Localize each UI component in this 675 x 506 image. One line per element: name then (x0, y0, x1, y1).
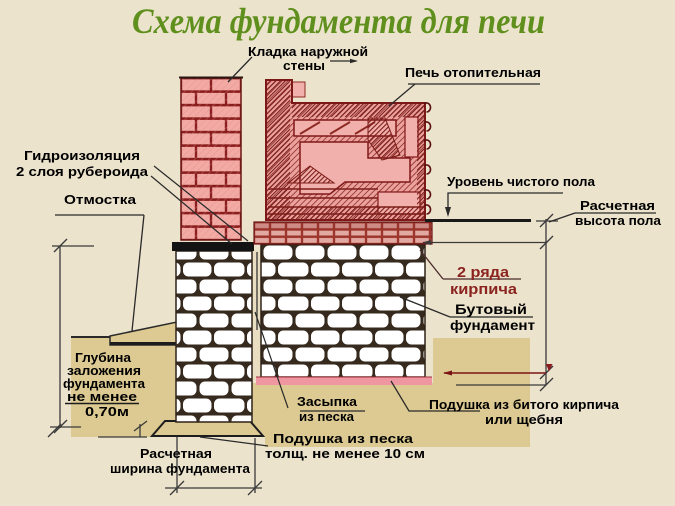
svg-text:не менее: не менее (67, 389, 137, 404)
svg-text:Кладка наружной: Кладка наружной (248, 44, 368, 59)
svg-text:толщ. не менее 10 см: толщ. не менее 10 см (265, 446, 425, 461)
svg-text:Бутовый: Бутовый (455, 301, 527, 317)
svg-text:Подушка из битого кирпича: Подушка из битого кирпича (429, 397, 620, 412)
svg-text:Отмостка: Отмостка (64, 192, 137, 207)
svg-text:2 слоя рубероида: 2 слоя рубероида (16, 164, 149, 179)
svg-text:из песка: из песка (299, 409, 355, 424)
svg-text:ширина фундамента: ширина фундамента (110, 461, 251, 476)
svg-text:фундамент: фундамент (450, 317, 535, 333)
svg-text:0,70м: 0,70м (85, 404, 129, 419)
svg-text:Подушка из песка: Подушка из песка (273, 431, 414, 446)
svg-text:2 ряда: 2 ряда (457, 264, 510, 281)
svg-text:высота пола: высота пола (575, 213, 662, 228)
svg-text:стены: стены (283, 58, 325, 73)
svg-text:Засыпка: Засыпка (297, 394, 358, 409)
svg-text:Схема фундамента для печи: Схема фундамента для печи (132, 1, 545, 41)
svg-text:Печь отопительная: Печь отопительная (405, 65, 541, 80)
svg-text:Гидроизоляция: Гидроизоляция (24, 148, 140, 163)
svg-text:Расчетная: Расчетная (140, 446, 212, 461)
svg-text:или щебня: или щебня (485, 412, 563, 427)
svg-text:Расчетная: Расчетная (580, 198, 655, 213)
svg-text:Уровень чистого пола: Уровень чистого пола (447, 174, 596, 189)
svg-text:кирпича: кирпича (450, 281, 518, 298)
